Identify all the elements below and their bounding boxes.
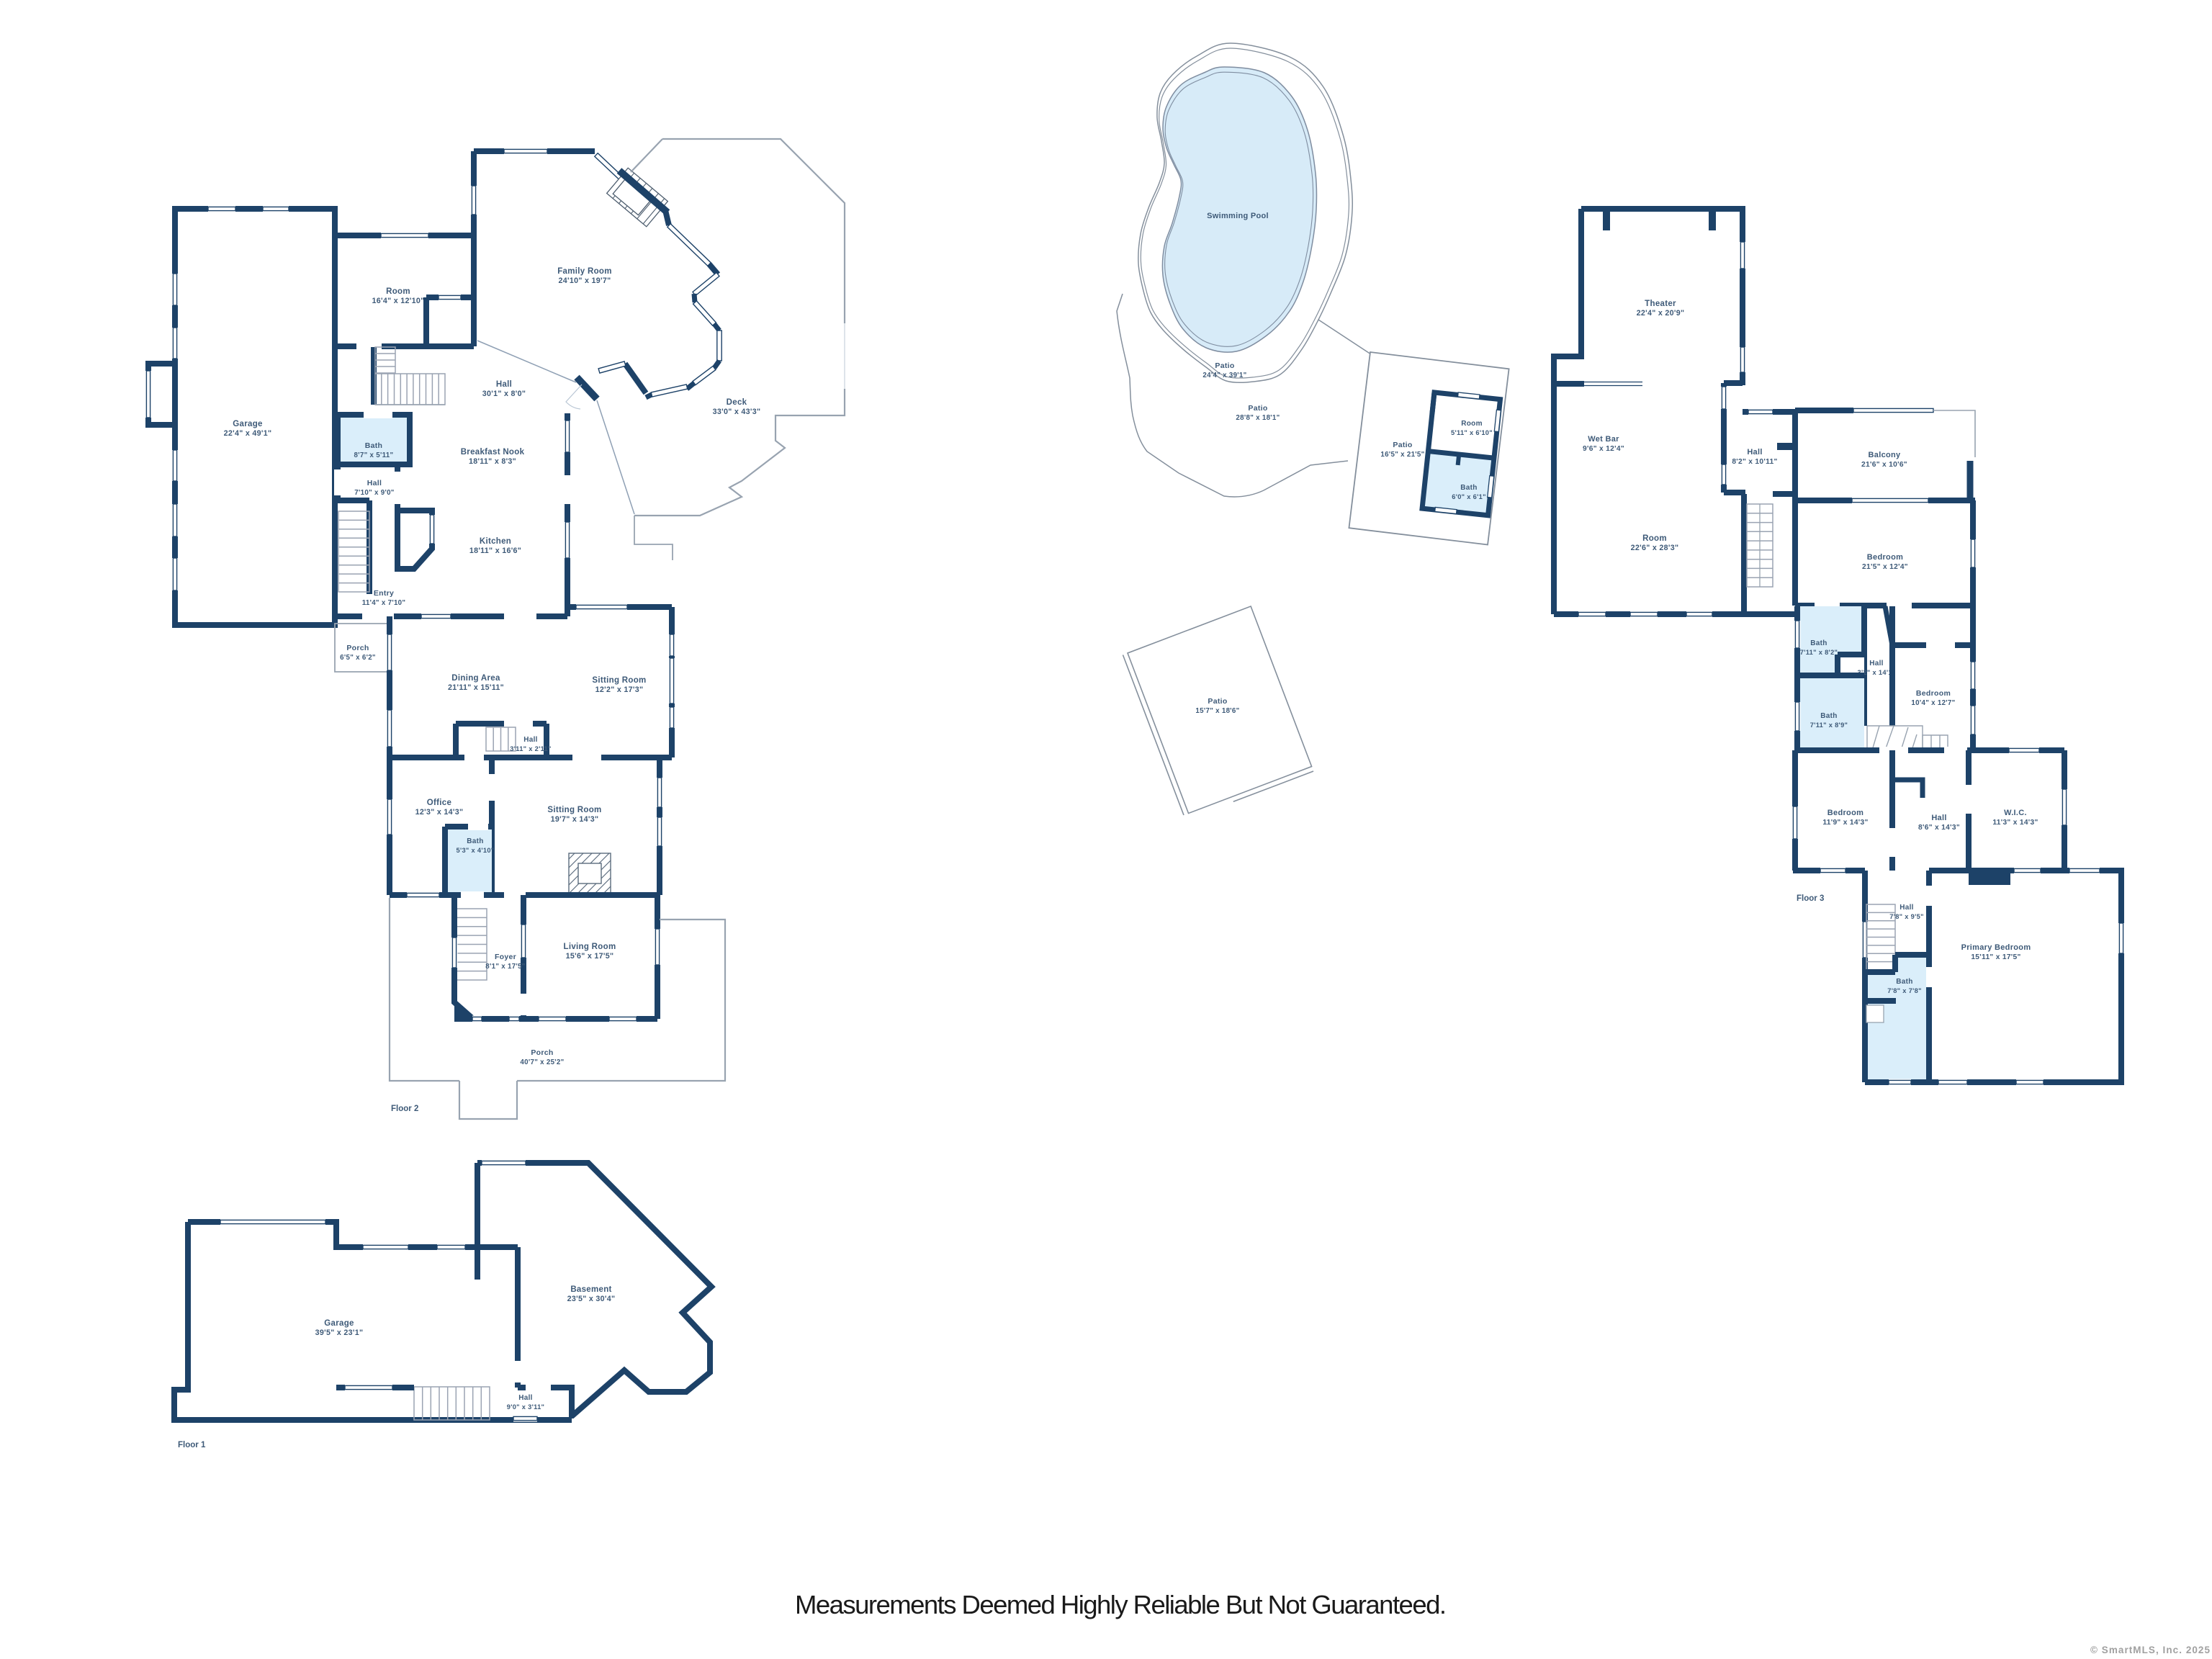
- svg-text:39'5" x 23'1": 39'5" x 23'1": [315, 1328, 364, 1337]
- svg-text:Living Room: Living Room: [564, 943, 616, 951]
- svg-text:Bath: Bath: [1896, 978, 1912, 986]
- svg-text:Porch: Porch: [531, 1048, 553, 1057]
- svg-text:Patio: Patio: [1215, 361, 1234, 370]
- svg-text:Bath: Bath: [1460, 484, 1477, 492]
- svg-text:Patio: Patio: [1248, 404, 1267, 413]
- svg-text:15'7" x 18'6": 15'7" x 18'6": [1195, 707, 1239, 715]
- svg-text:40'7" x 25'2": 40'7" x 25'2": [520, 1058, 564, 1066]
- svg-text:8'2" x 10'11": 8'2" x 10'11": [1732, 458, 1777, 466]
- svg-text:7'8" x 7'8": 7'8" x 7'8": [1887, 987, 1922, 994]
- svg-text:Swimming Pool: Swimming Pool: [1207, 212, 1269, 220]
- svg-text:Room: Room: [1461, 420, 1483, 428]
- svg-text:Hall: Hall: [518, 1394, 533, 1402]
- svg-text:W.I.C.: W.I.C.: [2004, 809, 2027, 817]
- svg-text:6'0" x 6'1": 6'0" x 6'1": [1452, 493, 1486, 500]
- svg-text:5'3" x 4'10": 5'3" x 4'10": [456, 847, 494, 854]
- svg-text:19'7" x 14'3": 19'7" x 14'3": [551, 815, 599, 824]
- svg-text:11'9" x 14'3": 11'9" x 14'3": [1822, 819, 1868, 827]
- svg-text:Hall: Hall: [367, 479, 382, 487]
- svg-text:8'1" x 17'5": 8'1" x 17'5": [485, 963, 525, 971]
- svg-text:Patio: Patio: [1393, 441, 1412, 449]
- svg-text:Porch: Porch: [346, 644, 369, 652]
- svg-text:Bath: Bath: [365, 441, 383, 450]
- svg-text:21'5" x 12'4": 21'5" x 12'4": [1862, 563, 1908, 571]
- svg-text:Sitting Room: Sitting Room: [547, 806, 601, 814]
- svg-text:Bath: Bath: [467, 837, 483, 845]
- svg-text:Wet Bar: Wet Bar: [1588, 435, 1619, 444]
- svg-text:Room: Room: [1642, 534, 1667, 543]
- svg-text:Primary Bedroom: Primary Bedroom: [1961, 943, 2031, 952]
- svg-text:Hall: Hall: [1899, 904, 1914, 912]
- svg-text:12'3" x 14'3": 12'3" x 14'3": [415, 808, 464, 817]
- svg-text:8'6" x 14'3": 8'6" x 14'3": [1918, 824, 1960, 832]
- svg-text:9'0" x 3'11": 9'0" x 3'11": [507, 1403, 545, 1411]
- svg-text:Entry: Entry: [374, 589, 394, 598]
- svg-text:Office: Office: [427, 799, 451, 807]
- svg-text:33'0" x 43'3": 33'0" x 43'3": [713, 408, 761, 416]
- svg-text:28'8" x 18'1": 28'8" x 18'1": [1236, 414, 1280, 422]
- svg-text:6'5" x 6'2": 6'5" x 6'2": [340, 654, 376, 662]
- svg-text:Garage: Garage: [233, 420, 262, 428]
- svg-text:22'4" x 20'9": 22'4" x 20'9": [1637, 309, 1685, 318]
- svg-text:Bath: Bath: [1820, 712, 1837, 720]
- svg-text:Dining Area: Dining Area: [451, 674, 500, 683]
- svg-text:Foyer: Foyer: [495, 953, 516, 961]
- svg-text:15'6" x 17'5": 15'6" x 17'5": [566, 952, 614, 961]
- svg-text:7'8" x 9'5": 7'8" x 9'5": [1889, 913, 1924, 920]
- svg-text:16'4" x 12'10": 16'4" x 12'10": [372, 297, 425, 305]
- svg-text:Floor 1: Floor 1: [178, 1441, 206, 1449]
- svg-text:18'11" x 16'6": 18'11" x 16'6": [469, 547, 521, 555]
- svg-text:© SmartMLS, Inc. 2025: © SmartMLS, Inc. 2025: [2090, 1645, 2210, 1655]
- svg-text:Room: Room: [386, 287, 410, 296]
- svg-text:21'6" x 10'6": 21'6" x 10'6": [1861, 461, 1907, 469]
- svg-text:Deck: Deck: [727, 398, 747, 407]
- svg-text:Balcony: Balcony: [1869, 451, 1901, 459]
- svg-text:24'4" x 39'1": 24'4" x 39'1": [1202, 372, 1246, 379]
- svg-text:7'11" x 8'2": 7'11" x 8'2": [1800, 649, 1838, 656]
- svg-text:22'6" x 28'3": 22'6" x 28'3": [1631, 544, 1679, 552]
- svg-text:5'11" x 6'10": 5'11" x 6'10": [1451, 429, 1493, 436]
- svg-text:Hall: Hall: [1747, 448, 1762, 457]
- svg-text:18'11" x 8'3": 18'11" x 8'3": [469, 457, 516, 466]
- svg-text:Hall: Hall: [523, 736, 538, 744]
- svg-text:11'4" x 7'10": 11'4" x 7'10": [362, 599, 406, 607]
- svg-text:9'6" x 12'4": 9'6" x 12'4": [1583, 445, 1624, 453]
- svg-text:Kitchen: Kitchen: [480, 537, 511, 546]
- svg-text:3'11" x 2'11": 3'11" x 2'11": [510, 745, 551, 752]
- svg-text:10'4" x 12'7": 10'4" x 12'7": [1911, 699, 1955, 707]
- svg-text:24'10" x 19'7": 24'10" x 19'7": [559, 276, 611, 285]
- svg-text:Bedroom: Bedroom: [1867, 553, 1903, 562]
- svg-text:Bedroom: Bedroom: [1916, 689, 1951, 698]
- svg-text:Sitting Room: Sitting Room: [592, 676, 646, 685]
- svg-text:15'11" x 17'5": 15'11" x 17'5": [1971, 953, 2020, 961]
- svg-text:Measurements Deemed Highly Rel: Measurements Deemed Highly Reliable But …: [795, 1590, 1447, 1619]
- svg-text:21'11" x 15'11": 21'11" x 15'11": [448, 683, 504, 692]
- svg-text:Bath: Bath: [1810, 639, 1827, 647]
- svg-text:30'1" x 8'0": 30'1" x 8'0": [482, 390, 526, 398]
- svg-text:Theater: Theater: [1645, 300, 1676, 308]
- svg-text:Hall: Hall: [1931, 814, 1946, 822]
- svg-text:Hall: Hall: [496, 380, 512, 389]
- svg-text:7'11" x 8'9": 7'11" x 8'9": [1810, 721, 1848, 729]
- svg-text:23'5" x 30'4": 23'5" x 30'4": [567, 1295, 616, 1303]
- svg-text:Bedroom: Bedroom: [1827, 809, 1863, 817]
- svg-text:Breakfast Nook: Breakfast Nook: [461, 448, 525, 457]
- svg-text:Basement: Basement: [570, 1285, 611, 1294]
- svg-text:Hall: Hall: [1869, 660, 1884, 667]
- svg-text:8'7" x 5'11": 8'7" x 5'11": [354, 451, 394, 459]
- svg-text:22'4" x 49'1": 22'4" x 49'1": [224, 429, 272, 438]
- svg-text:7'10" x 9'0": 7'10" x 9'0": [354, 489, 394, 497]
- svg-text:16'5" x 21'5": 16'5" x 21'5": [1380, 451, 1424, 459]
- svg-text:11'3" x 14'3": 11'3" x 14'3": [1992, 819, 2038, 827]
- svg-text:12'2" x 17'3": 12'2" x 17'3": [595, 685, 644, 694]
- svg-text:Family Room: Family Room: [557, 267, 612, 276]
- svg-text:Floor 3: Floor 3: [1797, 894, 1824, 903]
- svg-text:Garage: Garage: [324, 1319, 354, 1328]
- svg-text:Floor 2: Floor 2: [391, 1105, 418, 1113]
- svg-text:Patio: Patio: [1208, 697, 1227, 706]
